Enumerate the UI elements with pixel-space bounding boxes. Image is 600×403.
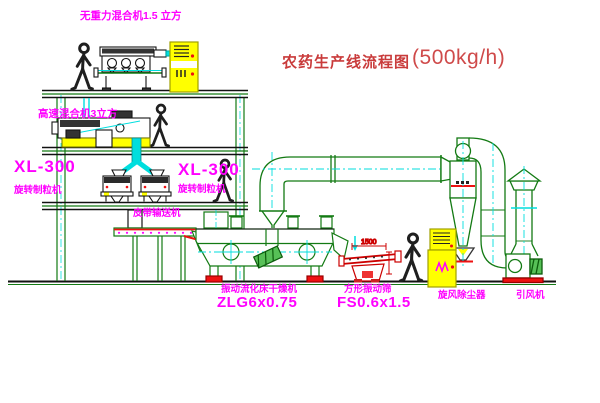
granulator-left-model-label: XL-300 <box>14 158 76 176</box>
belt-conveyor <box>114 210 210 281</box>
floor-slab-top <box>42 91 248 98</box>
diagram-title: 农药生产线流程图 (500kg/h) <box>282 46 505 72</box>
sieve-dimension-text: 1500 <box>361 239 377 246</box>
control-cabinet-top <box>170 42 198 92</box>
dryer-model-label: ZLG6x0.75 <box>217 295 297 311</box>
granulator-right <box>139 170 171 202</box>
gravity-mixer <box>94 47 172 91</box>
fluid-bed-dryer <box>196 210 334 282</box>
exhaust-duct-main <box>252 152 458 228</box>
fan-duct-and-stack <box>469 138 543 283</box>
floor-slab-middle <box>42 148 248 155</box>
worker-figure-top <box>72 44 93 89</box>
title-chinese: 农药生产线流程图 <box>282 46 410 72</box>
granulator-right-name-label: 旋转制粒机 <box>178 185 226 195</box>
worker-figure-mid <box>150 105 169 146</box>
gravity-mixer-label: 无重力混合机1.5 立方 <box>80 11 182 22</box>
fan-label: 引风机 <box>516 291 545 301</box>
sieve-model-label: FS0.6x1.5 <box>337 295 411 311</box>
title-capacity: (500kg/h) <box>412 46 505 70</box>
granulator-right-model-label: XL-300 <box>178 161 240 179</box>
worker-figure-sieve <box>400 234 421 281</box>
control-cabinet-right <box>428 229 456 287</box>
belt-conveyor-label: 皮带输送机 <box>133 209 181 219</box>
pesticide-line-flow-diagram: 1500 农药生产线流程图 (500kg/h) 无重力混合机1.5 立方 高速混… <box>0 0 600 403</box>
granulator-left-name-label: 旋转制粒机 <box>14 186 62 196</box>
induced-draft-fan <box>503 254 543 283</box>
granulator-left <box>101 170 133 202</box>
cyclone-label: 旋风除尘器 <box>438 291 486 301</box>
high-speed-mixer-label: 高速混合机3立方 <box>38 109 117 120</box>
vibrating-sieve: 1500 <box>339 239 401 283</box>
